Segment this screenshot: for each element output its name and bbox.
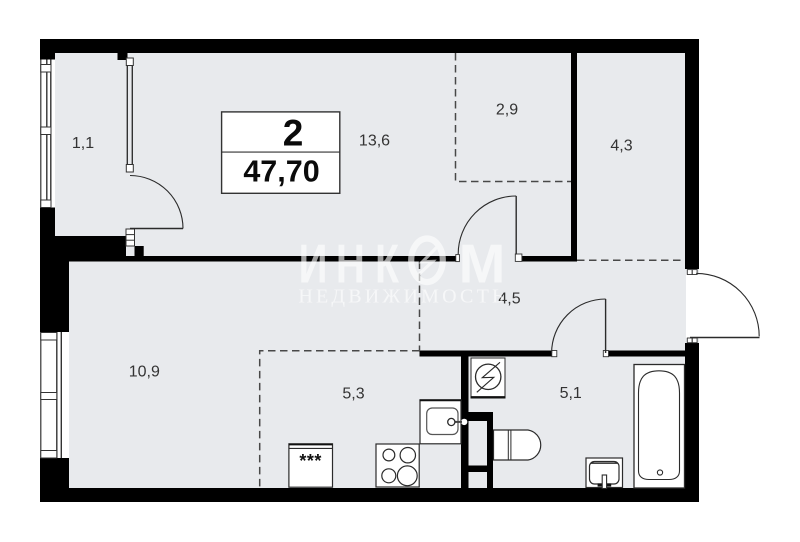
svg-text:13,6: 13,6 — [359, 133, 390, 150]
svg-text:НЕДВИЖИМОСТЬ: НЕДВИЖИМОСТЬ — [298, 286, 506, 308]
svg-text:4,3: 4,3 — [610, 138, 632, 155]
svg-text:5,1: 5,1 — [560, 385, 582, 402]
svg-text:10,9: 10,9 — [129, 363, 160, 380]
svg-text:5,3: 5,3 — [342, 385, 364, 402]
svg-text:2: 2 — [283, 113, 304, 154]
svg-text:47,70: 47,70 — [243, 154, 319, 188]
svg-text:1,1: 1,1 — [72, 135, 94, 152]
svg-text:2,9: 2,9 — [496, 102, 518, 119]
svg-text:***: *** — [299, 451, 322, 471]
